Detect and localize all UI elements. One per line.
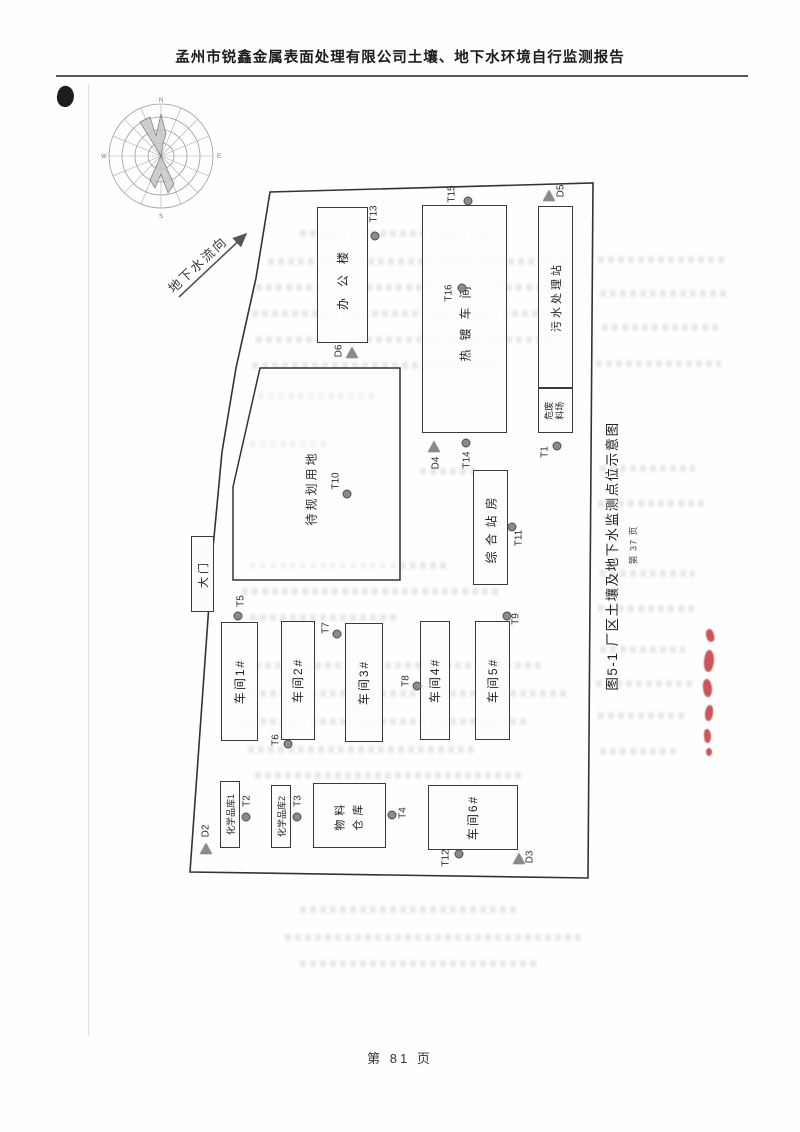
bleed-through-text-row	[252, 310, 552, 317]
soil-point-label-t11: T11	[514, 530, 525, 547]
chemical-storehouse-2-label: 化学品库2	[275, 796, 288, 837]
soil-point-marker-t10	[343, 490, 352, 499]
compass-n-label: N	[159, 98, 163, 104]
soil-point-label-t5: T5	[236, 595, 247, 607]
groundwater-point-marker-d5	[543, 190, 555, 201]
bleed-through-text-row	[420, 468, 480, 475]
building-hazwaste-yard: 危废 料场	[538, 388, 573, 433]
report-header-title: 孟州市锐鑫金属表面处理有限公司土壤、地下水环境自行监测报告	[0, 46, 800, 67]
soil-point-marker-t13	[371, 232, 380, 241]
soil-point-label-t14: T14	[462, 451, 473, 468]
bleed-through-text-row	[250, 562, 450, 569]
building-material-warehouse: 物料 仓库	[313, 783, 386, 848]
groundwater-flow-label: 地下水流向	[163, 231, 231, 296]
building-chemical-storehouse-2: 化学品库2	[271, 785, 291, 848]
bleed-through-text-row	[600, 290, 728, 297]
workshop-6-label: 车间6#	[464, 795, 481, 840]
building-workshop-2: 车间2#	[281, 621, 315, 740]
soil-point-marker-t5	[234, 612, 243, 621]
figure-caption: 图5-1 厂区土壤及地下水监测点位示意图	[601, 421, 621, 690]
building-workshop-5: 车间5#	[475, 621, 510, 740]
building-workshop-6: 车间6#	[428, 785, 518, 850]
wind-rose: N E S W	[100, 94, 226, 224]
groundwater-point-marker-d4	[428, 441, 440, 452]
compass-e-label: E	[217, 154, 221, 160]
soil-point-label-t8: T8	[401, 675, 412, 687]
groundwater-point-marker-d6	[346, 347, 358, 358]
soil-point-marker-t14	[462, 439, 471, 448]
soil-point-label-t15: T15	[447, 185, 458, 202]
bleed-through-text-row	[256, 336, 556, 343]
bleed-through-text-row	[250, 614, 400, 621]
soil-point-marker-t2	[242, 813, 251, 822]
bleed-through-text-row	[258, 392, 378, 399]
compass-w-label: W	[101, 154, 107, 160]
groundwater-point-marker-d3	[513, 853, 525, 864]
soil-point-marker-t4	[388, 811, 397, 820]
workshop-4-label: 车间4#	[427, 658, 444, 703]
groundwater-point-label-d6: D6	[334, 345, 345, 358]
soil-point-label-t2: T2	[242, 795, 253, 807]
red-stamp-mark	[706, 748, 712, 756]
red-stamp-mark	[703, 729, 711, 744]
building-composite-station-label: 综合站房	[482, 491, 499, 563]
bleed-through-text-row	[285, 934, 585, 941]
building-workshop-1: 车间1#	[221, 622, 258, 741]
red-stamp-mark	[704, 628, 716, 643]
bleed-through-text-row	[300, 906, 520, 913]
groundwater-point-label-d4: D4	[431, 457, 442, 470]
hazwaste-yard-label-line2: 料场	[555, 401, 566, 419]
bleed-through-text-row	[602, 324, 720, 331]
building-sewage-station: 污水处理站	[538, 206, 573, 388]
workshop-5-label: 车间5#	[484, 658, 501, 703]
building-office: 办公楼	[317, 207, 368, 343]
soil-point-marker-t3	[293, 813, 302, 822]
groundwater-point-label-d3: D3	[525, 851, 536, 864]
building-plating-workshop: 热镀车间	[422, 205, 507, 433]
compass-s-label: S	[159, 214, 163, 220]
bleed-through-text-row	[250, 440, 330, 447]
bleed-through-text-row	[268, 258, 568, 265]
building-chemical-storehouse-1: 化学品库1	[220, 781, 240, 848]
bleed-through-text-row	[248, 746, 478, 753]
soil-point-label-t1: T1	[540, 446, 551, 458]
soil-point-marker-t15	[464, 197, 473, 206]
soil-point-label-t7: T7	[321, 622, 332, 634]
groundwater-point-label-d5: D5	[556, 185, 567, 198]
red-stamp-mark	[703, 704, 714, 721]
bleed-through-text-row	[300, 960, 540, 967]
soil-point-marker-t8	[413, 682, 422, 691]
bleed-through-text-row	[596, 360, 721, 367]
material-warehouse-label-line2: 仓库	[350, 801, 368, 831]
soil-point-marker-t1	[553, 442, 562, 451]
soil-point-label-t13: T13	[369, 205, 380, 222]
building-composite-station: 综合站房	[473, 470, 508, 585]
gate: 大门	[191, 536, 214, 612]
header-rule	[56, 75, 748, 77]
soil-point-marker-t16	[458, 284, 467, 293]
hazwaste-yard-label-line1: 危废	[545, 401, 556, 419]
groundwater-point-marker-d2	[200, 843, 212, 854]
bleed-through-text-row	[598, 712, 686, 719]
groundwater-point-label-d2: D2	[201, 825, 212, 838]
bleed-through-text-row	[256, 284, 566, 291]
building-workshop-3: 车间3#	[345, 623, 383, 742]
chemical-storehouse-1-label: 化学品库1	[224, 794, 237, 835]
embedded-page-number: 第 37 页	[627, 525, 640, 564]
soil-point-label-t4: T4	[398, 807, 409, 819]
scan-smudge	[55, 84, 77, 108]
bleed-through-text-row	[242, 588, 502, 595]
soil-point-label-t16: T16	[444, 284, 455, 301]
scan-edge-line	[88, 84, 89, 1036]
bleed-through-text-row	[598, 256, 728, 263]
soil-point-marker-t12	[455, 850, 464, 859]
bleed-through-text-row	[255, 772, 525, 779]
red-stamp-mark	[702, 678, 714, 697]
material-warehouse-label-line1: 物料	[332, 801, 350, 831]
red-stamp-mark	[703, 649, 716, 672]
soil-point-label-t10: T10	[331, 472, 342, 489]
workshop-3-label: 车间3#	[356, 660, 373, 705]
soil-point-label-t12: T12	[441, 849, 452, 866]
bleed-through-text-row	[600, 748, 680, 755]
building-office-label: 办公楼	[334, 240, 351, 309]
soil-point-marker-t6	[284, 740, 293, 749]
building-sewage-station-label: 污水处理站	[548, 262, 564, 332]
planned-land-label: 待规划用地	[303, 450, 320, 525]
gate-label: 大门	[195, 560, 211, 588]
soil-point-label-t3: T3	[293, 795, 304, 807]
building-workshop-4: 车间4#	[420, 621, 450, 740]
scanned-report-page: 孟州市锐鑫金属表面处理有限公司土壤、地下水环境自行监测报告 N E S W	[0, 0, 800, 1132]
workshop-1-label: 车间1#	[231, 659, 248, 704]
soil-point-label-t6: T6	[271, 734, 282, 746]
soil-point-marker-t7	[333, 630, 342, 639]
page-number: 第 81 页	[0, 1048, 800, 1067]
workshop-2-label: 车间2#	[290, 658, 307, 703]
soil-point-label-t9: T9	[511, 613, 522, 625]
